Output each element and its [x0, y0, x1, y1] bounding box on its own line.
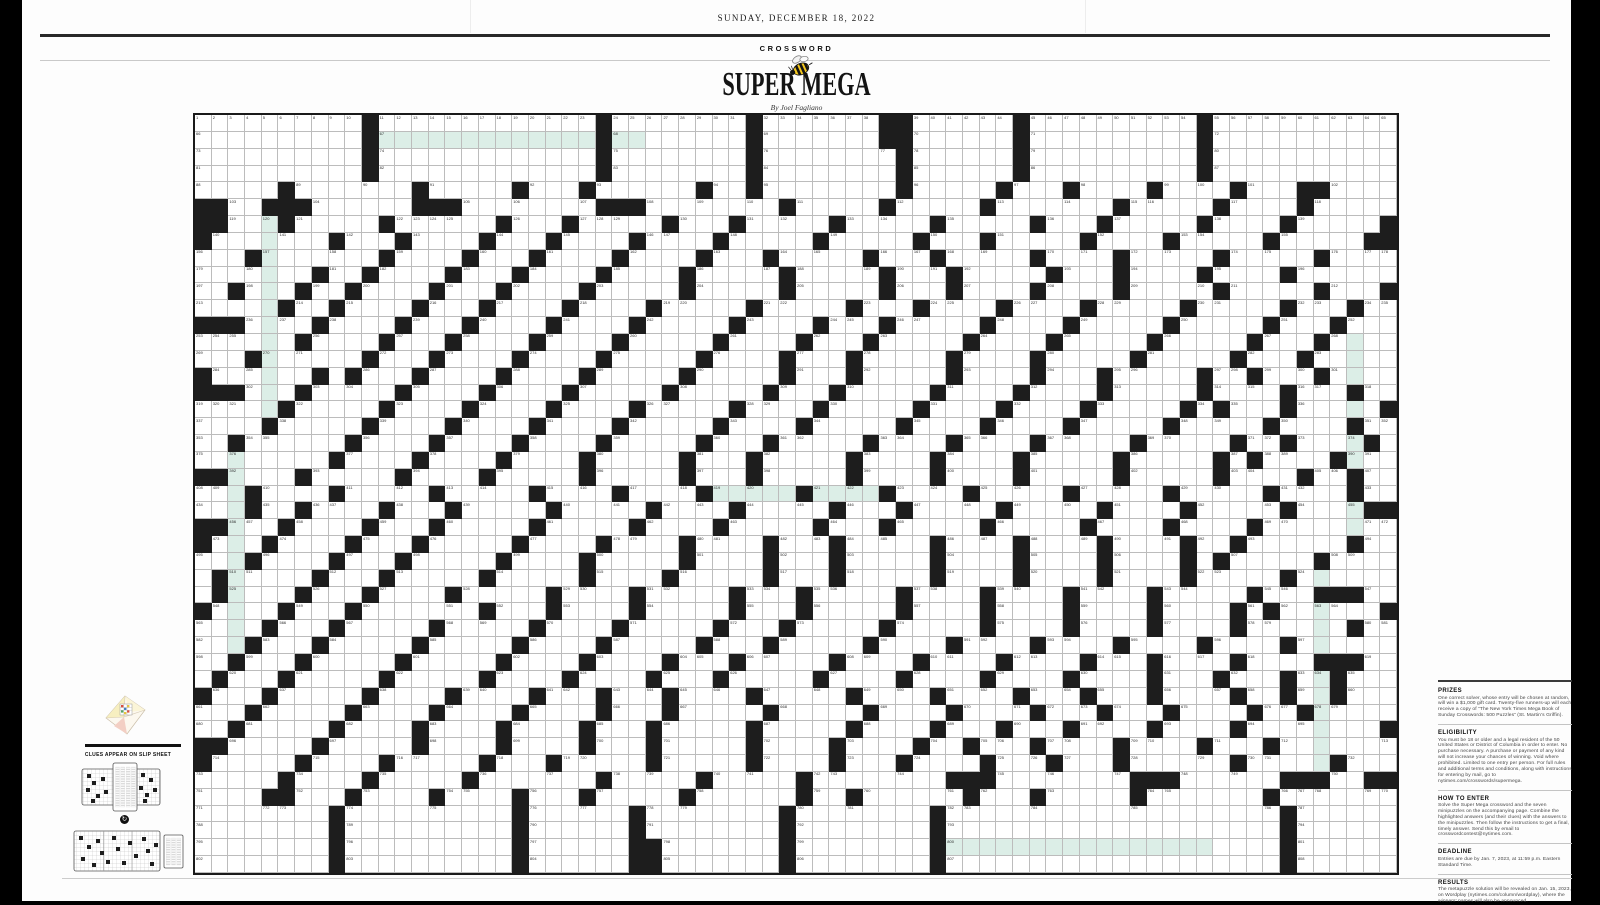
grid-cell[interactable] — [813, 166, 830, 183]
grid-cell[interactable] — [379, 738, 396, 755]
grid-cell[interactable] — [245, 620, 262, 637]
grid-cell[interactable] — [1147, 536, 1164, 553]
grid-cell[interactable] — [879, 688, 896, 705]
grid-cell[interactable] — [896, 233, 913, 250]
grid-cell[interactable] — [479, 132, 496, 149]
grid-cell[interactable] — [1247, 267, 1264, 284]
grid-cell[interactable] — [963, 401, 980, 418]
grid-cell[interactable] — [729, 839, 746, 856]
grid-cell[interactable] — [395, 132, 412, 149]
grid-cell[interactable]: 130 — [679, 216, 696, 233]
grid-cell[interactable] — [1113, 149, 1130, 166]
grid-cell[interactable]: 672 — [1046, 705, 1063, 722]
grid-cell[interactable] — [228, 772, 245, 789]
grid-cell[interactable]: 636 — [212, 688, 229, 705]
grid-cell[interactable] — [763, 283, 780, 300]
grid-cell[interactable] — [696, 721, 713, 738]
grid-cell[interactable] — [662, 368, 679, 385]
grid-cell[interactable] — [429, 385, 446, 402]
grid-cell[interactable] — [963, 216, 980, 233]
grid-cell[interactable]: 95 — [763, 182, 780, 199]
grid-cell[interactable] — [1180, 250, 1197, 267]
grid-cell[interactable] — [1247, 570, 1264, 587]
grid-cell[interactable] — [1263, 822, 1280, 839]
grid-cell[interactable]: 305 — [412, 385, 429, 402]
grid-cell[interactable] — [245, 806, 262, 823]
grid-cell[interactable] — [629, 267, 646, 284]
grid-cell[interactable] — [1147, 300, 1164, 317]
grid-cell[interactable] — [846, 435, 863, 452]
grid-cell[interactable]: 80 — [1213, 149, 1230, 166]
grid-cell[interactable] — [1213, 182, 1230, 199]
grid-cell[interactable] — [963, 418, 980, 435]
grid-cell[interactable] — [496, 536, 513, 553]
grid-cell[interactable] — [1280, 283, 1297, 300]
grid-cell[interactable]: 563 — [1314, 603, 1331, 620]
grid-cell[interactable] — [696, 570, 713, 587]
grid-cell[interactable] — [629, 789, 646, 806]
grid-cell[interactable] — [629, 755, 646, 772]
grid-cell[interactable] — [295, 806, 312, 823]
grid-cell[interactable]: 294 — [1046, 368, 1063, 385]
grid-cell[interactable]: 351 — [1364, 418, 1381, 435]
grid-cell[interactable] — [412, 334, 429, 351]
grid-cell[interactable] — [796, 317, 813, 334]
grid-cell[interactable]: 165 — [813, 250, 830, 267]
grid-cell[interactable]: 390 — [1347, 452, 1364, 469]
grid-cell[interactable] — [1230, 418, 1247, 435]
grid-cell[interactable] — [1213, 351, 1230, 368]
grid-cell[interactable]: 353 — [195, 435, 212, 452]
grid-cell[interactable] — [345, 199, 362, 216]
grid-cell[interactable]: 511 — [245, 570, 262, 587]
grid-cell[interactable] — [646, 705, 663, 722]
grid-cell[interactable]: 574 — [896, 620, 913, 637]
grid-cell[interactable]: 243 — [746, 317, 763, 334]
grid-cell[interactable]: 311 — [946, 385, 963, 402]
grid-cell[interactable] — [546, 300, 563, 317]
grid-cell[interactable] — [1213, 587, 1230, 604]
grid-cell[interactable] — [662, 199, 679, 216]
grid-cell[interactable] — [295, 368, 312, 385]
grid-cell[interactable] — [379, 789, 396, 806]
grid-cell[interactable] — [412, 502, 429, 519]
grid-cell[interactable]: 441 — [612, 502, 629, 519]
grid-cell[interactable] — [1364, 216, 1381, 233]
grid-cell[interactable] — [1314, 570, 1331, 587]
grid-cell[interactable] — [813, 856, 830, 873]
grid-cell[interactable] — [262, 166, 279, 183]
grid-cell[interactable]: 601 — [412, 654, 429, 671]
grid-cell[interactable]: 364 — [896, 435, 913, 452]
grid-cell[interactable]: 630 — [1080, 671, 1097, 688]
grid-cell[interactable]: 315 — [1247, 385, 1264, 402]
grid-cell[interactable] — [1380, 822, 1397, 839]
grid-cell[interactable]: 154 — [1197, 233, 1214, 250]
grid-cell[interactable]: 265 — [1063, 334, 1080, 351]
grid-cell[interactable] — [212, 806, 229, 823]
grid-cell[interactable] — [379, 603, 396, 620]
grid-cell[interactable] — [212, 822, 229, 839]
grid-cell[interactable] — [612, 671, 629, 688]
grid-cell[interactable]: 143 — [412, 233, 429, 250]
grid-cell[interactable]: 248 — [996, 317, 1013, 334]
grid-cell[interactable] — [445, 250, 462, 267]
grid-cell[interactable] — [813, 283, 830, 300]
grid-cell[interactable] — [679, 822, 696, 839]
grid-cell[interactable] — [713, 385, 730, 402]
grid-cell[interactable] — [262, 570, 279, 587]
grid-cell[interactable]: 768 — [1314, 789, 1331, 806]
grid-cell[interactable] — [1197, 721, 1214, 738]
grid-cell[interactable]: 403 — [1230, 469, 1247, 486]
grid-cell[interactable]: 792 — [796, 822, 813, 839]
grid-cell[interactable]: 372 — [1263, 435, 1280, 452]
grid-cell[interactable]: 757 — [596, 789, 613, 806]
grid-cell[interactable] — [746, 620, 763, 637]
grid-cell[interactable]: 23 — [579, 115, 596, 132]
grid-cell[interactable] — [312, 603, 329, 620]
grid-cell[interactable] — [879, 738, 896, 755]
grid-cell[interactable] — [1130, 519, 1147, 536]
grid-cell[interactable]: 170 — [1046, 250, 1063, 267]
grid-cell[interactable] — [462, 620, 479, 637]
grid-cell[interactable] — [362, 385, 379, 402]
grid-cell[interactable] — [345, 216, 362, 233]
grid-cell[interactable] — [1263, 553, 1280, 570]
grid-cell[interactable] — [262, 334, 279, 351]
grid-cell[interactable]: 447 — [913, 502, 930, 519]
grid-cell[interactable]: 9 — [329, 115, 346, 132]
grid-cell[interactable] — [1280, 250, 1297, 267]
grid-cell[interactable] — [1364, 199, 1381, 216]
grid-cell[interactable] — [1247, 166, 1264, 183]
grid-cell[interactable]: 659 — [1297, 688, 1314, 705]
grid-cell[interactable] — [1263, 166, 1280, 183]
grid-cell[interactable] — [546, 132, 563, 149]
grid-cell[interactable] — [596, 401, 613, 418]
grid-cell[interactable] — [262, 283, 279, 300]
grid-cell[interactable] — [846, 822, 863, 839]
grid-cell[interactable] — [1263, 721, 1280, 738]
grid-cell[interactable] — [662, 317, 679, 334]
grid-cell[interactable]: 323 — [395, 401, 412, 418]
grid-cell[interactable] — [980, 149, 997, 166]
grid-cell[interactable] — [1013, 789, 1030, 806]
grid-cell[interactable]: 663 — [362, 705, 379, 722]
grid-cell[interactable] — [245, 839, 262, 856]
grid-cell[interactable] — [429, 688, 446, 705]
grid-cell[interactable] — [496, 199, 513, 216]
grid-cell[interactable] — [1230, 267, 1247, 284]
grid-cell[interactable] — [1180, 721, 1197, 738]
grid-cell[interactable]: 134 — [879, 216, 896, 233]
grid-cell[interactable]: 767 — [1297, 789, 1314, 806]
grid-cell[interactable] — [1347, 132, 1364, 149]
grid-cell[interactable] — [562, 705, 579, 722]
grid-cell[interactable] — [763, 418, 780, 435]
grid-cell[interactable] — [829, 149, 846, 166]
grid-cell[interactable]: 76 — [763, 149, 780, 166]
grid-cell[interactable]: 318 — [1364, 385, 1381, 402]
grid-cell[interactable]: 541 — [1080, 587, 1097, 604]
grid-cell[interactable]: 40 — [930, 115, 947, 132]
grid-cell[interactable]: 223 — [863, 300, 880, 317]
grid-cell[interactable]: 85 — [913, 166, 930, 183]
grid-cell[interactable] — [1380, 368, 1397, 385]
grid-cell[interactable]: 322 — [295, 401, 312, 418]
grid-cell[interactable]: 680 — [195, 721, 212, 738]
grid-cell[interactable] — [1197, 334, 1214, 351]
grid-cell[interactable] — [362, 620, 379, 637]
grid-cell[interactable]: 632 — [1230, 671, 1247, 688]
grid-cell[interactable] — [1297, 553, 1314, 570]
grid-cell[interactable] — [278, 267, 295, 284]
grid-cell[interactable] — [662, 250, 679, 267]
grid-cell[interactable] — [1030, 603, 1047, 620]
grid-cell[interactable]: 406 — [1330, 469, 1347, 486]
grid-cell[interactable] — [1280, 351, 1297, 368]
grid-cell[interactable]: 153 — [1180, 233, 1197, 250]
grid-cell[interactable]: 537 — [913, 587, 930, 604]
grid-cell[interactable] — [462, 283, 479, 300]
grid-cell[interactable] — [729, 132, 746, 149]
grid-cell[interactable] — [1063, 300, 1080, 317]
grid-cell[interactable] — [612, 300, 629, 317]
grid-cell[interactable]: 361 — [779, 435, 796, 452]
grid-cell[interactable] — [379, 536, 396, 553]
grid-cell[interactable]: 164 — [779, 250, 796, 267]
grid-cell[interactable]: 788 — [195, 822, 212, 839]
grid-cell[interactable]: 620 — [228, 671, 245, 688]
grid-cell[interactable] — [896, 216, 913, 233]
grid-cell[interactable]: 718 — [496, 755, 513, 772]
grid-cell[interactable]: 13 — [412, 115, 429, 132]
grid-cell[interactable]: 304 — [345, 385, 362, 402]
grid-cell[interactable] — [479, 822, 496, 839]
grid-cell[interactable]: 220 — [679, 300, 696, 317]
grid-cell[interactable]: 119 — [228, 216, 245, 233]
grid-cell[interactable] — [896, 452, 913, 469]
grid-cell[interactable] — [295, 435, 312, 452]
grid-cell[interactable] — [462, 755, 479, 772]
grid-cell[interactable] — [829, 620, 846, 637]
grid-cell[interactable] — [612, 738, 629, 755]
grid-cell[interactable] — [963, 233, 980, 250]
grid-cell[interactable] — [646, 553, 663, 570]
grid-cell[interactable] — [529, 385, 546, 402]
grid-cell[interactable] — [846, 132, 863, 149]
grid-cell[interactable] — [829, 637, 846, 654]
grid-cell[interactable] — [796, 385, 813, 402]
grid-cell[interactable]: 338 — [278, 418, 295, 435]
grid-cell[interactable]: 678 — [1314, 705, 1331, 722]
grid-cell[interactable] — [1197, 553, 1214, 570]
grid-cell[interactable]: 79 — [1030, 149, 1047, 166]
grid-cell[interactable] — [1230, 856, 1247, 873]
grid-cell[interactable] — [763, 368, 780, 385]
grid-cell[interactable] — [963, 536, 980, 553]
grid-cell[interactable] — [813, 502, 830, 519]
grid-cell[interactable] — [1330, 502, 1347, 519]
grid-cell[interactable]: 70 — [913, 132, 930, 149]
grid-cell[interactable] — [1080, 637, 1097, 654]
grid-cell[interactable]: 335 — [1230, 401, 1247, 418]
grid-cell[interactable] — [546, 199, 563, 216]
grid-cell[interactable]: 453 — [1263, 502, 1280, 519]
grid-cell[interactable] — [262, 300, 279, 317]
grid-cell[interactable]: 210 — [1197, 283, 1214, 300]
grid-cell[interactable] — [512, 132, 529, 149]
grid-cell[interactable]: 628 — [913, 671, 930, 688]
grid-cell[interactable] — [228, 806, 245, 823]
grid-cell[interactable] — [1163, 452, 1180, 469]
grid-cell[interactable] — [679, 351, 696, 368]
grid-cell[interactable]: 530 — [579, 587, 596, 604]
grid-cell[interactable]: 597 — [1297, 637, 1314, 654]
grid-cell[interactable]: 711 — [1213, 738, 1230, 755]
grid-cell[interactable]: 75 — [612, 149, 629, 166]
grid-cell[interactable]: 191 — [930, 267, 947, 284]
grid-cell[interactable] — [763, 789, 780, 806]
grid-cell[interactable] — [462, 536, 479, 553]
grid-cell[interactable] — [1230, 502, 1247, 519]
grid-cell[interactable]: 565 — [195, 620, 212, 637]
grid-cell[interactable]: 790 — [529, 822, 546, 839]
grid-cell[interactable] — [646, 435, 663, 452]
grid-cell[interactable]: 180 — [245, 267, 262, 284]
grid-cell[interactable] — [1330, 149, 1347, 166]
grid-cell[interactable] — [1247, 772, 1264, 789]
grid-cell[interactable]: 559 — [1080, 603, 1097, 620]
grid-cell[interactable] — [546, 570, 563, 587]
grid-cell[interactable] — [278, 637, 295, 654]
grid-cell[interactable] — [980, 300, 997, 317]
grid-cell[interactable]: 213 — [195, 300, 212, 317]
grid-cell[interactable] — [696, 418, 713, 435]
grid-cell[interactable]: 354 — [245, 435, 262, 452]
grid-cell[interactable] — [329, 166, 346, 183]
grid-cell[interactable]: 29 — [696, 115, 713, 132]
grid-cell[interactable]: 280 — [1046, 351, 1063, 368]
grid-cell[interactable] — [863, 587, 880, 604]
grid-cell[interactable] — [1330, 486, 1347, 503]
grid-cell[interactable]: 433 — [1364, 486, 1381, 503]
grid-cell[interactable] — [1314, 822, 1331, 839]
grid-cell[interactable]: 246 — [896, 317, 913, 334]
grid-cell[interactable]: 302 — [245, 385, 262, 402]
grid-cell[interactable] — [1364, 570, 1381, 587]
grid-cell[interactable] — [395, 856, 412, 873]
grid-cell[interactable]: 573 — [796, 620, 813, 637]
grid-cell[interactable]: 449 — [1013, 502, 1030, 519]
grid-cell[interactable] — [395, 300, 412, 317]
grid-cell[interactable] — [846, 334, 863, 351]
grid-cell[interactable] — [646, 216, 663, 233]
grid-cell[interactable]: 212 — [1330, 283, 1347, 300]
grid-cell[interactable] — [1097, 603, 1114, 620]
grid-cell[interactable]: 30 — [713, 115, 730, 132]
grid-cell[interactable]: 169 — [980, 250, 997, 267]
grid-cell[interactable] — [930, 368, 947, 385]
grid-cell[interactable]: 781 — [846, 806, 863, 823]
grid-cell[interactable] — [262, 755, 279, 772]
grid-cell[interactable]: 517 — [779, 570, 796, 587]
grid-cell[interactable]: 161 — [546, 250, 563, 267]
grid-cell[interactable]: 148 — [729, 233, 746, 250]
grid-cell[interactable]: 794 — [1297, 822, 1314, 839]
grid-cell[interactable] — [679, 334, 696, 351]
grid-cell[interactable] — [1163, 368, 1180, 385]
grid-cell[interactable] — [679, 435, 696, 452]
grid-cell[interactable]: 348 — [1180, 418, 1197, 435]
grid-cell[interactable] — [278, 839, 295, 856]
grid-cell[interactable] — [646, 452, 663, 469]
grid-cell[interactable] — [1013, 637, 1030, 654]
grid-cell[interactable] — [629, 149, 646, 166]
grid-cell[interactable] — [1097, 486, 1114, 503]
grid-cell[interactable] — [612, 283, 629, 300]
grid-cell[interactable] — [262, 654, 279, 671]
grid-cell[interactable] — [312, 418, 329, 435]
grid-cell[interactable] — [963, 519, 980, 536]
grid-cell[interactable]: 569 — [479, 620, 496, 637]
grid-cell[interactable]: 11 — [379, 115, 396, 132]
grid-cell[interactable] — [262, 233, 279, 250]
grid-cell[interactable]: 653 — [1030, 688, 1047, 705]
grid-cell[interactable]: 201 — [445, 283, 462, 300]
grid-cell[interactable] — [913, 789, 930, 806]
grid-cell[interactable] — [1046, 233, 1063, 250]
grid-cell[interactable] — [896, 469, 913, 486]
grid-cell[interactable]: 631 — [1163, 671, 1180, 688]
grid-cell[interactable] — [963, 587, 980, 604]
grid-cell[interactable]: 139 — [1297, 216, 1314, 233]
grid-cell[interactable] — [896, 536, 913, 553]
grid-cell[interactable] — [1063, 705, 1080, 722]
grid-cell[interactable] — [1080, 469, 1097, 486]
grid-cell[interactable] — [863, 738, 880, 755]
grid-cell[interactable]: 345 — [913, 418, 930, 435]
grid-cell[interactable] — [896, 789, 913, 806]
grid-cell[interactable] — [713, 317, 730, 334]
grid-cell[interactable]: 591 — [963, 637, 980, 654]
grid-cell[interactable] — [829, 250, 846, 267]
grid-cell[interactable] — [729, 822, 746, 839]
grid-cell[interactable] — [345, 317, 362, 334]
grid-cell[interactable] — [913, 486, 930, 503]
grid-cell[interactable] — [696, 385, 713, 402]
grid-cell[interactable] — [462, 856, 479, 873]
grid-cell[interactable] — [278, 570, 295, 587]
grid-cell[interactable] — [295, 637, 312, 654]
grid-cell[interactable] — [913, 469, 930, 486]
grid-cell[interactable] — [1013, 317, 1030, 334]
grid-cell[interactable] — [963, 317, 980, 334]
grid-cell[interactable] — [913, 368, 930, 385]
grid-cell[interactable] — [462, 671, 479, 688]
grid-cell[interactable] — [479, 182, 496, 199]
grid-cell[interactable] — [212, 856, 229, 873]
grid-cell[interactable]: 57 — [1247, 115, 1264, 132]
grid-cell[interactable] — [1080, 216, 1097, 233]
grid-cell[interactable]: 360 — [713, 435, 730, 452]
grid-cell[interactable] — [1364, 182, 1381, 199]
grid-cell[interactable] — [1097, 469, 1114, 486]
grid-cell[interactable] — [429, 132, 446, 149]
grid-cell[interactable] — [1030, 334, 1047, 351]
grid-cell[interactable]: 544 — [1180, 587, 1197, 604]
